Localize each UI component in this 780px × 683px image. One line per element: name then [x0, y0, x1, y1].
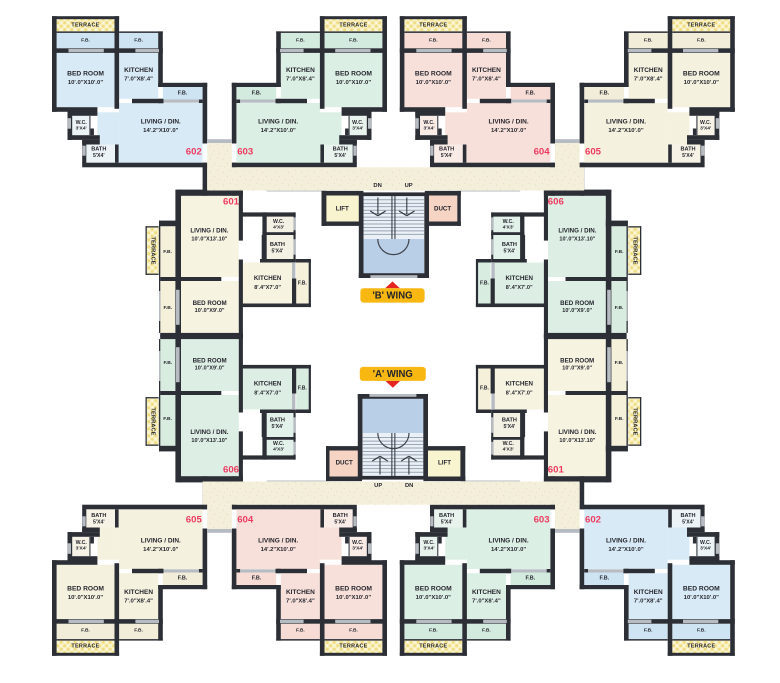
svg-text:14'.2"X10'.0": 14'.2"X10'.0" — [491, 128, 526, 134]
svg-text:4'X3': 4'X3' — [503, 224, 514, 230]
svg-text:LIVING / DIN.: LIVING / DIN. — [141, 538, 181, 545]
svg-text:8'.4"X7'.0": 8'.4"X7'.0" — [506, 285, 533, 291]
svg-text:10'.0"X10'.0": 10'.0"X10'.0" — [416, 595, 451, 601]
svg-text:F.B.: F.B. — [429, 627, 438, 633]
svg-text:10'.0"X10'.0": 10'.0"X10'.0" — [68, 80, 103, 86]
svg-text:W.C.: W.C. — [700, 540, 712, 546]
svg-text:F.B.: F.B. — [615, 249, 624, 255]
svg-text:BED ROOM: BED ROOM — [415, 586, 452, 593]
svg-text:3'X4': 3'X4' — [76, 126, 87, 132]
svg-text:BATH: BATH — [333, 513, 348, 519]
svg-text:F.B.: F.B. — [615, 360, 624, 366]
svg-text:F.B.: F.B. — [615, 305, 624, 311]
svg-text:KITCHEN: KITCHEN — [634, 67, 663, 74]
svg-text:606: 606 — [223, 464, 239, 475]
svg-text:W.C.: W.C. — [423, 120, 435, 126]
svg-text:5'X4': 5'X4' — [504, 248, 516, 254]
svg-text:'B' WING: 'B' WING — [373, 291, 413, 302]
svg-text:W.C.: W.C. — [273, 441, 285, 447]
svg-text:8'.4"X7'.0": 8'.4"X7'.0" — [254, 285, 281, 291]
svg-text:F.B.: F.B. — [482, 627, 491, 633]
svg-text:BED ROOM: BED ROOM — [67, 71, 104, 78]
svg-text:3'X4': 3'X4' — [423, 126, 434, 132]
svg-text:BED ROOM: BED ROOM — [193, 358, 227, 365]
svg-text:10'.0"X10'.0": 10'.0"X10'.0" — [336, 80, 371, 86]
svg-text:5'X4': 5'X4' — [334, 520, 346, 526]
svg-text:W.C.: W.C. — [503, 219, 515, 225]
svg-text:DN: DN — [405, 483, 413, 489]
svg-text:10'.0"X10'.0": 10'.0"X10'.0" — [336, 595, 371, 601]
svg-text:F.B.: F.B. — [429, 38, 438, 44]
svg-text:F.B.: F.B. — [81, 38, 90, 44]
svg-text:TERRACE: TERRACE — [149, 236, 155, 264]
svg-text:W.C.: W.C. — [352, 540, 364, 546]
svg-text:DUCT: DUCT — [336, 460, 353, 467]
svg-text:LIVING / DIN.: LIVING / DIN. — [489, 118, 529, 125]
svg-text:BATH: BATH — [439, 146, 454, 152]
svg-text:7'.0"X8'.4": 7'.0"X8'.4" — [634, 599, 663, 605]
svg-text:603: 603 — [534, 515, 550, 526]
svg-text:BATH: BATH — [502, 418, 517, 424]
svg-text:BATH: BATH — [91, 513, 106, 519]
svg-text:BATH: BATH — [270, 418, 285, 424]
svg-text:W.C.: W.C. — [700, 120, 712, 126]
svg-text:TERRACE: TERRACE — [632, 236, 638, 264]
svg-text:10'.0"X9'.0": 10'.0"X9'.0" — [562, 365, 592, 371]
svg-text:606: 606 — [548, 197, 564, 208]
svg-text:BED ROOM: BED ROOM — [683, 71, 720, 78]
svg-text:F.B.: F.B. — [697, 627, 706, 633]
svg-text:W.C.: W.C. — [76, 540, 88, 546]
svg-text:F.B.: F.B. — [697, 38, 706, 44]
svg-text:F.B.: F.B. — [349, 627, 358, 633]
svg-text:BED ROOM: BED ROOM — [193, 300, 227, 307]
svg-text:BED ROOM: BED ROOM — [560, 358, 594, 365]
svg-text:4'X3': 4'X3' — [503, 447, 514, 453]
svg-text:'A' WING: 'A' WING — [373, 369, 413, 380]
svg-text:F.B.: F.B. — [178, 91, 188, 97]
svg-text:14'.2"X10'.0": 14'.2"X10'.0" — [261, 547, 296, 553]
svg-text:TERRACE: TERRACE — [71, 23, 99, 29]
svg-text:10'.0"X13'.10": 10'.0"X13'.10" — [559, 438, 595, 444]
svg-text:601: 601 — [548, 464, 565, 475]
svg-text:W.C.: W.C. — [273, 219, 285, 225]
svg-text:8'.4"X7'.0": 8'.4"X7'.0" — [506, 390, 533, 396]
svg-text:TERRACE: TERRACE — [339, 643, 367, 649]
svg-text:F.B.: F.B. — [252, 575, 262, 581]
svg-text:F.B.: F.B. — [600, 575, 610, 581]
svg-text:F.B.: F.B. — [134, 38, 143, 44]
svg-text:603: 603 — [237, 146, 253, 157]
svg-text:W.C.: W.C. — [352, 120, 364, 126]
svg-text:BED ROOM: BED ROOM — [335, 586, 372, 593]
svg-text:10'.0"X9'.0": 10'.0"X9'.0" — [562, 308, 592, 314]
svg-text:14'.2"X10'.0": 14'.2"X10'.0" — [143, 547, 178, 553]
svg-text:BATH: BATH — [333, 146, 348, 152]
svg-text:602: 602 — [585, 515, 601, 526]
svg-text:3'X4': 3'X4' — [423, 546, 434, 552]
svg-text:W.C.: W.C. — [423, 540, 435, 546]
svg-text:602: 602 — [186, 146, 202, 157]
svg-text:5'X4': 5'X4' — [93, 520, 105, 526]
svg-text:601: 601 — [223, 197, 240, 208]
svg-text:604: 604 — [534, 146, 551, 157]
svg-text:F.B.: F.B. — [81, 627, 90, 633]
svg-text:10'.0"X13'.10": 10'.0"X13'.10" — [191, 237, 227, 243]
svg-text:F.B.: F.B. — [482, 38, 491, 44]
svg-text:14'.2"X10'.0": 14'.2"X10'.0" — [608, 547, 643, 553]
svg-text:5'X4': 5'X4' — [441, 153, 453, 159]
svg-text:TERRACE: TERRACE — [149, 407, 155, 435]
svg-text:3'X4': 3'X4' — [700, 126, 711, 132]
svg-text:BED ROOM: BED ROOM — [683, 586, 720, 593]
svg-text:DN: DN — [373, 183, 381, 189]
svg-text:7'.0"X8'.4": 7'.0"X8'.4" — [124, 76, 153, 82]
svg-text:F.B.: F.B. — [296, 38, 305, 44]
svg-text:TERRACE: TERRACE — [339, 23, 367, 29]
svg-text:F.B.: F.B. — [526, 91, 536, 97]
svg-text:BATH: BATH — [680, 146, 695, 152]
svg-text:BATH: BATH — [270, 242, 285, 248]
svg-text:10'.0"X10'.0": 10'.0"X10'.0" — [684, 595, 719, 601]
svg-text:7'.0"X8'.4": 7'.0"X8'.4" — [472, 76, 501, 82]
svg-text:KITCHEN: KITCHEN — [124, 67, 153, 74]
svg-text:604: 604 — [237, 515, 254, 526]
svg-text:KITCHEN: KITCHEN — [505, 275, 533, 282]
svg-text:BATH: BATH — [91, 146, 106, 152]
svg-text:7'.0"X8'.4": 7'.0"X8'.4" — [124, 599, 153, 605]
svg-text:KITCHEN: KITCHEN — [286, 589, 315, 596]
svg-text:KITCHEN: KITCHEN — [254, 275, 282, 282]
svg-text:3'X4': 3'X4' — [352, 126, 363, 132]
svg-text:F.B.: F.B. — [480, 280, 490, 286]
svg-text:10'.0"X13'.10": 10'.0"X13'.10" — [191, 438, 227, 444]
svg-text:F.B.: F.B. — [644, 627, 653, 633]
svg-text:14'.2"X10'.0": 14'.2"X10'.0" — [261, 128, 296, 134]
svg-text:F.B.: F.B. — [296, 627, 305, 633]
svg-text:5'X4': 5'X4' — [504, 424, 516, 430]
svg-text:7'.0"X8'.4": 7'.0"X8'.4" — [286, 76, 315, 82]
svg-text:LIVING / DIN.: LIVING / DIN. — [489, 538, 529, 545]
svg-text:BED ROOM: BED ROOM — [415, 71, 452, 78]
svg-text:LIFT: LIFT — [336, 206, 349, 213]
svg-text:10'.0"X13'.10": 10'.0"X13'.10" — [559, 237, 595, 243]
svg-text:10'.0"X10'.0": 10'.0"X10'.0" — [416, 80, 451, 86]
svg-text:3'X4': 3'X4' — [352, 546, 363, 552]
svg-text:BATH: BATH — [680, 513, 695, 519]
svg-text:10'.0"X9'.0": 10'.0"X9'.0" — [195, 365, 225, 371]
svg-text:TERRACE: TERRACE — [419, 643, 447, 649]
svg-text:LIFT: LIFT — [438, 460, 451, 467]
svg-text:LIVING / DIN.: LIVING / DIN. — [558, 227, 596, 234]
svg-text:3'X4': 3'X4' — [76, 546, 87, 552]
svg-text:BED ROOM: BED ROOM — [335, 71, 372, 78]
svg-text:LIVING / DIN.: LIVING / DIN. — [190, 227, 228, 234]
svg-text:5'X4': 5'X4' — [682, 520, 694, 526]
svg-text:BATH: BATH — [439, 513, 454, 519]
svg-text:BED ROOM: BED ROOM — [67, 586, 104, 593]
svg-text:F.B.: F.B. — [526, 575, 536, 581]
svg-text:TERRACE: TERRACE — [71, 643, 99, 649]
svg-text:KITCHEN: KITCHEN — [505, 381, 533, 388]
svg-text:LIVING / DIN.: LIVING / DIN. — [606, 118, 646, 125]
svg-text:4'X3': 4'X3' — [273, 224, 284, 230]
svg-text:KITCHEN: KITCHEN — [472, 67, 501, 74]
svg-text:F.B.: F.B. — [163, 360, 172, 366]
svg-text:W.C.: W.C. — [503, 441, 515, 447]
svg-text:5'X4': 5'X4' — [334, 153, 346, 159]
svg-text:W.C.: W.C. — [76, 120, 88, 126]
svg-text:TERRACE: TERRACE — [687, 643, 715, 649]
svg-text:LIVING / DIN.: LIVING / DIN. — [258, 118, 298, 125]
svg-text:605: 605 — [585, 146, 602, 157]
svg-text:F.B.: F.B. — [644, 38, 653, 44]
svg-text:F.B.: F.B. — [600, 91, 610, 97]
svg-text:F.B.: F.B. — [298, 386, 308, 392]
svg-text:10'.0"X10'.0": 10'.0"X10'.0" — [68, 595, 103, 601]
svg-text:UP: UP — [374, 483, 382, 489]
svg-text:F.B.: F.B. — [134, 627, 143, 633]
svg-text:F.B.: F.B. — [298, 280, 308, 286]
svg-text:LIVING / DIN.: LIVING / DIN. — [141, 118, 181, 125]
svg-text:TERRACE: TERRACE — [632, 407, 638, 435]
svg-text:KITCHEN: KITCHEN — [286, 67, 315, 74]
svg-text:605: 605 — [186, 515, 203, 526]
svg-text:TERRACE: TERRACE — [419, 23, 447, 29]
svg-text:7'.0"X8'.4": 7'.0"X8'.4" — [472, 599, 501, 605]
svg-text:14'.2"X10'.0": 14'.2"X10'.0" — [491, 547, 526, 553]
svg-text:F.B.: F.B. — [349, 38, 358, 44]
svg-text:7'.0"X8'.4": 7'.0"X8'.4" — [634, 76, 663, 82]
svg-text:UP: UP — [405, 183, 413, 189]
svg-text:TERRACE: TERRACE — [687, 23, 715, 29]
svg-text:F.B.: F.B. — [252, 91, 262, 97]
svg-text:F.B.: F.B. — [480, 386, 490, 392]
svg-text:KITCHEN: KITCHEN — [634, 589, 663, 596]
svg-text:10'.0"X10'.0": 10'.0"X10'.0" — [684, 80, 719, 86]
svg-text:5'X4': 5'X4' — [272, 248, 284, 254]
svg-text:BATH: BATH — [502, 242, 517, 248]
svg-text:5'X4': 5'X4' — [441, 520, 453, 526]
svg-text:KITCHEN: KITCHEN — [124, 589, 153, 596]
svg-text:DUCT: DUCT — [434, 206, 451, 213]
svg-text:F.B.: F.B. — [163, 249, 172, 255]
svg-text:14'.2"X10'.0": 14'.2"X10'.0" — [608, 128, 643, 134]
svg-text:5'X4': 5'X4' — [682, 153, 694, 159]
svg-text:10'.0"X9'.0": 10'.0"X9'.0" — [195, 308, 225, 314]
svg-text:F.B.: F.B. — [163, 416, 172, 422]
svg-text:F.B.: F.B. — [163, 305, 172, 311]
svg-text:BED ROOM: BED ROOM — [560, 300, 594, 307]
svg-text:5'X4': 5'X4' — [272, 424, 284, 430]
svg-text:LIVING / DIN.: LIVING / DIN. — [190, 429, 228, 436]
svg-text:F.B.: F.B. — [615, 416, 624, 422]
svg-text:7'.0"X8'.4": 7'.0"X8'.4" — [286, 599, 315, 605]
svg-text:LIVING / DIN.: LIVING / DIN. — [606, 538, 646, 545]
svg-text:KITCHEN: KITCHEN — [472, 589, 501, 596]
svg-text:3'X4': 3'X4' — [700, 546, 711, 552]
svg-text:F.B.: F.B. — [178, 575, 188, 581]
svg-text:LIVING / DIN.: LIVING / DIN. — [558, 429, 596, 436]
svg-text:LIVING / DIN.: LIVING / DIN. — [258, 538, 298, 545]
svg-text:4'X3': 4'X3' — [273, 447, 284, 453]
svg-text:KITCHEN: KITCHEN — [254, 381, 282, 388]
svg-text:8'.4"X7'.0": 8'.4"X7'.0" — [254, 390, 281, 396]
svg-text:14'.2"X10'.0": 14'.2"X10'.0" — [143, 128, 178, 134]
svg-text:5'X4': 5'X4' — [93, 153, 105, 159]
